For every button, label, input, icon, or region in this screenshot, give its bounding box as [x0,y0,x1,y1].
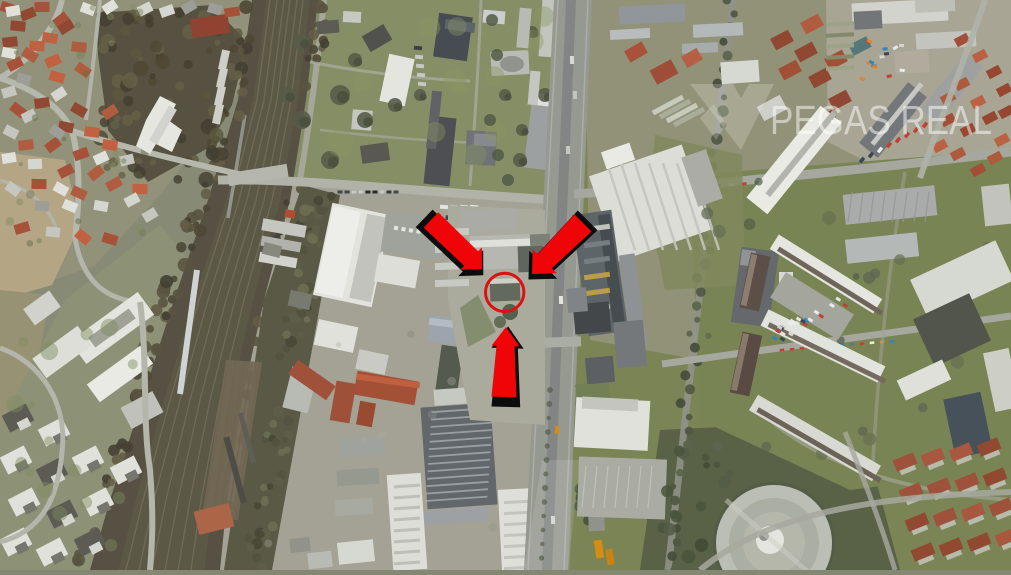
svg-text:PEGAS REAL: PEGAS REAL [770,97,992,143]
